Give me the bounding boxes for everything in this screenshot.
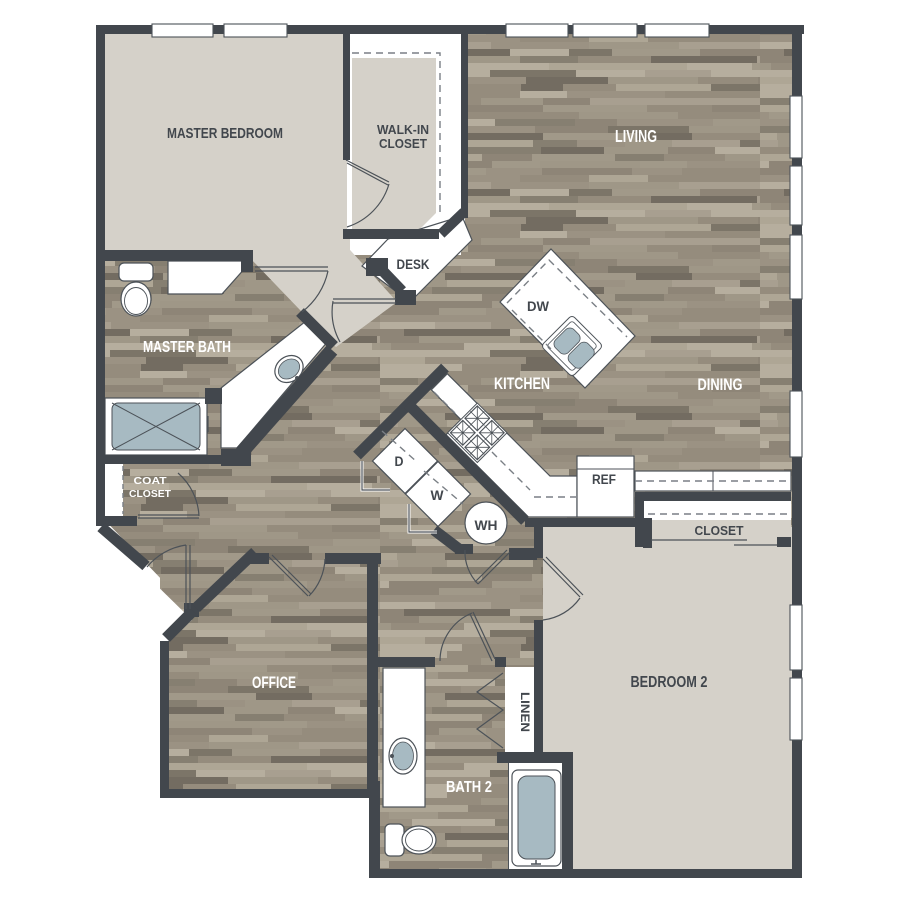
svg-text:D: D bbox=[395, 454, 404, 469]
svg-text:WALK-IN: WALK-IN bbox=[377, 123, 429, 137]
svg-text:W: W bbox=[431, 488, 444, 503]
svg-text:CLOSET: CLOSET bbox=[129, 488, 172, 500]
svg-text:LIVING: LIVING bbox=[615, 126, 657, 146]
svg-text:CLOSET: CLOSET bbox=[695, 523, 744, 538]
svg-text:KITCHEN: KITCHEN bbox=[494, 375, 550, 393]
svg-text:COAT: COAT bbox=[134, 475, 168, 487]
svg-text:WH: WH bbox=[475, 518, 498, 533]
svg-text:LINEN: LINEN bbox=[518, 692, 530, 732]
svg-text:MASTER BATH: MASTER BATH bbox=[143, 339, 231, 356]
svg-text:CLOSET: CLOSET bbox=[379, 137, 427, 151]
svg-text:REF: REF bbox=[592, 472, 616, 487]
svg-text:DW: DW bbox=[527, 299, 549, 314]
svg-text:DESK: DESK bbox=[397, 257, 430, 272]
svg-text:MASTER BEDROOM: MASTER BEDROOM bbox=[167, 125, 283, 142]
svg-text:DINING: DINING bbox=[698, 376, 743, 394]
svg-text:BATH 2: BATH 2 bbox=[446, 779, 492, 796]
svg-text:BEDROOM 2: BEDROOM 2 bbox=[631, 674, 708, 691]
svg-text:OFFICE: OFFICE bbox=[252, 674, 296, 692]
